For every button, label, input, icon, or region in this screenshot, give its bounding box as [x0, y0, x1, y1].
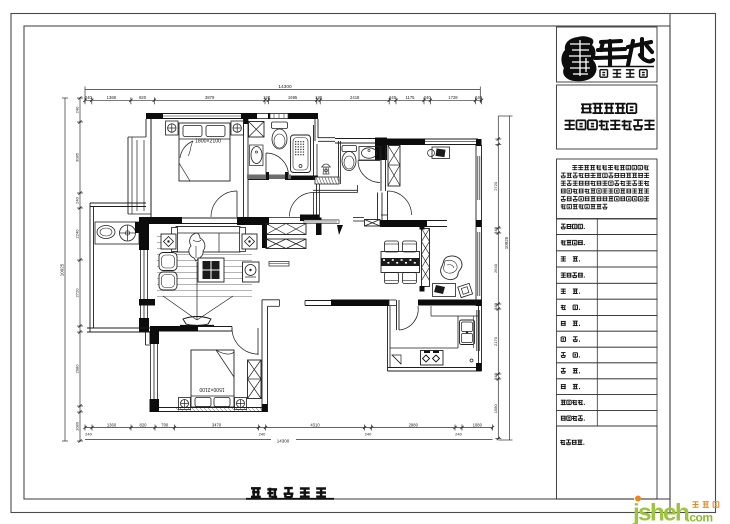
svg-text:820: 820	[139, 95, 147, 100]
svg-text:2980: 2980	[409, 422, 419, 427]
svg-text:4310: 4310	[310, 422, 320, 427]
svg-text:2980: 2980	[75, 364, 80, 374]
svg-text:1728: 1728	[448, 95, 458, 100]
svg-text:3470: 3470	[212, 422, 222, 427]
svg-text:820: 820	[140, 422, 148, 427]
svg-text:14300: 14300	[278, 84, 292, 90]
svg-text:240: 240	[259, 431, 266, 436]
svg-text:1360: 1360	[107, 422, 117, 427]
svg-text:2240: 2240	[75, 229, 80, 239]
svg-text:14300: 14300	[277, 439, 290, 444]
svg-text:2640: 2640	[493, 263, 498, 273]
svg-text:2418: 2418	[350, 95, 360, 100]
svg-text:1800×2100: 1800×2100	[195, 139, 221, 145]
svg-text:240: 240	[75, 106, 80, 113]
svg-text:.com: .com	[687, 511, 713, 524]
svg-text:1080: 1080	[473, 422, 483, 427]
svg-text:240: 240	[85, 95, 93, 100]
svg-text:240: 240	[389, 95, 397, 100]
svg-text:240: 240	[365, 431, 372, 436]
svg-text:1580: 1580	[493, 404, 498, 414]
svg-text:240: 240	[493, 302, 498, 309]
svg-text:240: 240	[493, 372, 498, 379]
svg-text:240: 240	[475, 95, 483, 100]
svg-text:2170: 2170	[493, 336, 498, 346]
svg-text:3085: 3085	[75, 152, 80, 162]
svg-text:240: 240	[75, 196, 80, 203]
svg-text:1175: 1175	[405, 95, 415, 100]
svg-text:700: 700	[161, 422, 169, 427]
svg-text:240: 240	[455, 431, 462, 436]
svg-text:1368: 1368	[107, 95, 117, 100]
svg-text:120: 120	[315, 95, 323, 100]
svg-text:10925: 10925	[60, 263, 65, 276]
svg-text:1080: 1080	[75, 421, 80, 431]
svg-text:120: 120	[263, 95, 271, 100]
svg-text:2720: 2720	[493, 181, 498, 191]
svg-text:10925: 10925	[504, 236, 509, 249]
svg-text:240: 240	[85, 431, 92, 436]
svg-text:1695: 1695	[288, 95, 298, 100]
svg-text:2720: 2720	[75, 288, 80, 298]
svg-text:240: 240	[493, 226, 498, 233]
svg-text:1500×2100: 1500×2100	[199, 386, 224, 392]
svg-text:240: 240	[424, 95, 432, 100]
svg-text:3879: 3879	[205, 95, 215, 100]
